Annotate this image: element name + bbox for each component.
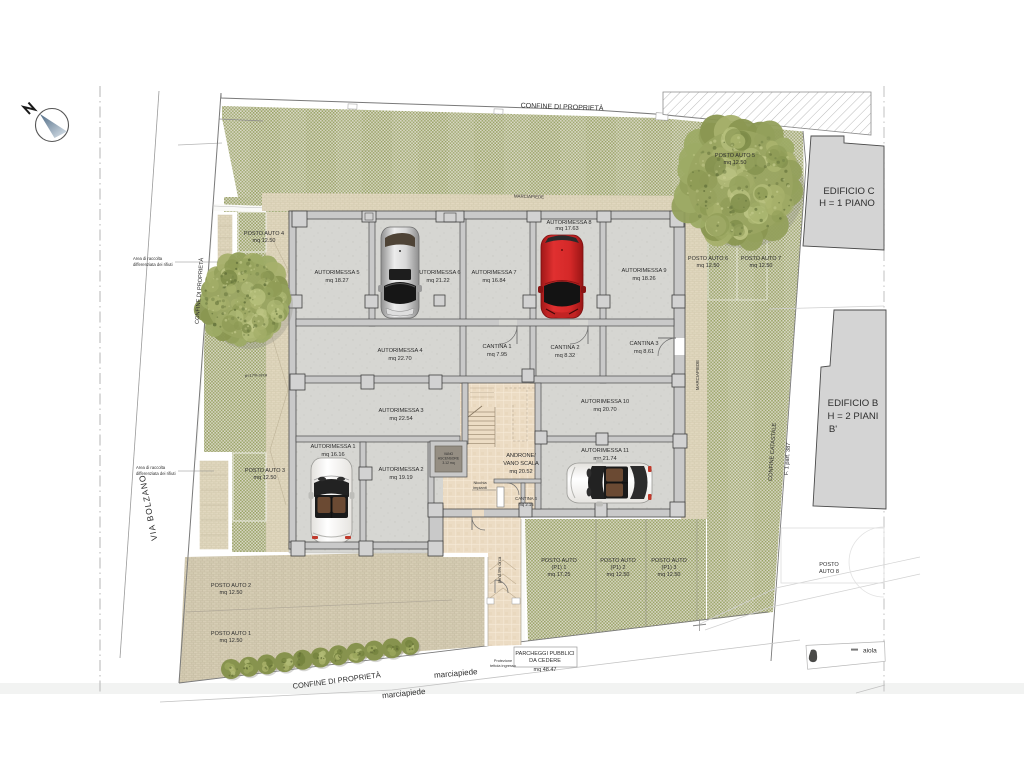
svg-text:impianti: impianti — [473, 485, 487, 490]
svg-text:AUTORIMESSA 5: AUTORIMESSA 5 — [314, 270, 359, 276]
svg-text:mq 48.47: mq 48.47 — [534, 667, 557, 673]
svg-text:mq 19.19: mq 19.19 — [389, 475, 412, 481]
svg-text:mq 12.50: mq 12.50 — [750, 263, 773, 269]
svg-text:POSTO AUTO 1: POSTO AUTO 1 — [211, 631, 251, 637]
svg-text:POSTO: POSTO — [819, 562, 839, 568]
svg-text:mq 18.26: mq 18.26 — [632, 276, 655, 282]
svg-text:differenziata dei rifiuti: differenziata dei rifiuti — [136, 471, 176, 476]
svg-text:EDIFICIO C: EDIFICIO C — [823, 186, 874, 197]
svg-text:mq 18.27: mq 18.27 — [325, 278, 348, 284]
svg-text:mq 12.50: mq 12.50 — [220, 590, 243, 596]
svg-text:PARCHEGGI PUBBLICI: PARCHEGGI PUBBLICI — [515, 651, 575, 657]
svg-text:POSTO AUTO 2: POSTO AUTO 2 — [211, 583, 251, 589]
svg-text:CANTINA 1: CANTINA 1 — [483, 344, 512, 350]
svg-text:AUTO 8: AUTO 8 — [819, 569, 839, 575]
svg-text:mq 2.15: mq 2.15 — [518, 502, 534, 507]
svg-text:Area di raccolta: Area di raccolta — [136, 465, 166, 470]
svg-text:mq 7.95: mq 7.95 — [487, 352, 507, 358]
svg-text:aiola: aiola — [863, 648, 877, 655]
svg-text:mq 20.52: mq 20.52 — [509, 469, 532, 475]
svg-text:mq 12.50: mq 12.50 — [254, 475, 277, 481]
svg-text:POSTO AUTO: POSTO AUTO — [651, 558, 687, 564]
svg-text:AUTORIMESSA 3: AUTORIMESSA 3 — [378, 408, 423, 414]
svg-text:mq 12.50: mq 12.50 — [253, 238, 276, 244]
svg-text:POSTO AUTO 3: POSTO AUTO 3 — [245, 468, 285, 474]
svg-text:POSTO AUTO: POSTO AUTO — [600, 558, 636, 564]
svg-text:H = 1 PIANO: H = 1 PIANO — [819, 198, 875, 209]
svg-text:tettoia ingresso: tettoia ingresso — [490, 664, 516, 668]
svg-text:(P1) 3: (P1) 3 — [662, 565, 677, 571]
svg-text:mq 12.50: mq 12.50 — [220, 638, 243, 644]
svg-text:MARCIAPIEDE: MARCIAPIEDE — [695, 360, 700, 390]
svg-text:mq 22.70: mq 22.70 — [388, 356, 411, 362]
svg-text:mq 12.50: mq 12.50 — [658, 572, 681, 578]
svg-text:mq 12.50: mq 12.50 — [607, 572, 630, 578]
svg-text:AUTORIMESSA 11: AUTORIMESSA 11 — [581, 448, 629, 454]
svg-text:AUTORIMESSA 7: AUTORIMESSA 7 — [471, 270, 516, 276]
svg-text:AUTORIMESSA 9: AUTORIMESSA 9 — [621, 268, 666, 274]
svg-text:Protezione: Protezione — [494, 659, 512, 663]
svg-text:POSTO AUTO 5: POSTO AUTO 5 — [715, 153, 755, 159]
svg-text:mq 8.61: mq 8.61 — [634, 349, 654, 355]
svg-text:AUTORIMESSA 2: AUTORIMESSA 2 — [378, 467, 423, 473]
svg-text:B': B' — [829, 424, 837, 435]
svg-text:CANTINA 2: CANTINA 2 — [551, 345, 580, 351]
svg-text:3.12 mq: 3.12 mq — [442, 461, 454, 465]
svg-text:VANO: VANO — [444, 452, 454, 456]
svg-text:POSTO AUTO 6: POSTO AUTO 6 — [688, 256, 728, 262]
svg-text:AUTORIMESSA 6: AUTORIMESSA 6 — [415, 270, 460, 276]
svg-text:mq 8.32: mq 8.32 — [555, 353, 575, 359]
svg-text:H = 2 PIANI: H = 2 PIANI — [828, 411, 879, 422]
svg-text:POSTO AUTO: POSTO AUTO — [541, 558, 577, 564]
svg-text:Area di raccolta: Area di raccolta — [133, 256, 163, 261]
svg-text:mq 12.50: mq 12.50 — [724, 160, 747, 166]
svg-text:p=17% circa: p=17% circa — [245, 372, 268, 378]
svg-text:(P1) 2: (P1) 2 — [611, 565, 626, 571]
svg-text:pend.5% circa: pend.5% circa — [497, 556, 502, 583]
svg-text:mq 17.25: mq 17.25 — [548, 572, 571, 578]
svg-text:AUTORIMESSA 1: AUTORIMESSA 1 — [310, 444, 355, 450]
svg-text:VANO SCALA: VANO SCALA — [503, 461, 539, 467]
svg-text:POSTO AUTO 4: POSTO AUTO 4 — [244, 231, 284, 237]
svg-text:CANTINA 4: CANTINA 4 — [515, 496, 537, 501]
svg-text:CANTINA 3: CANTINA 3 — [630, 341, 659, 347]
svg-text:mq 16.84: mq 16.84 — [482, 278, 505, 284]
svg-text:differenziata dei rifiuti: differenziata dei rifiuti — [133, 262, 173, 267]
svg-text:mq 17.63: mq 17.63 — [555, 226, 578, 232]
svg-text:POSTO AUTO 7: POSTO AUTO 7 — [741, 256, 781, 262]
svg-text:ANDRONE/: ANDRONE/ — [506, 453, 536, 459]
svg-text:mq 21.22: mq 21.22 — [426, 278, 449, 284]
svg-text:mq 12.50: mq 12.50 — [697, 263, 720, 269]
svg-text:mq 22.54: mq 22.54 — [389, 416, 412, 422]
svg-text:ASCENSORE: ASCENSORE — [438, 457, 460, 461]
svg-text:EDIFICIO B: EDIFICIO B — [828, 398, 879, 409]
svg-text:MARCIAPIEDE: MARCIAPIEDE — [514, 193, 544, 199]
svg-text:(P1) 1: (P1) 1 — [552, 565, 567, 571]
svg-text:AUTORIMESSA 10: AUTORIMESSA 10 — [581, 399, 629, 405]
svg-text:mq 16.16: mq 16.16 — [321, 452, 344, 458]
svg-text:mq 20.70: mq 20.70 — [593, 407, 616, 413]
svg-text:AUTORIMESSA 4: AUTORIMESSA 4 — [377, 348, 422, 354]
svg-text:DA CEDERE: DA CEDERE — [529, 658, 561, 664]
